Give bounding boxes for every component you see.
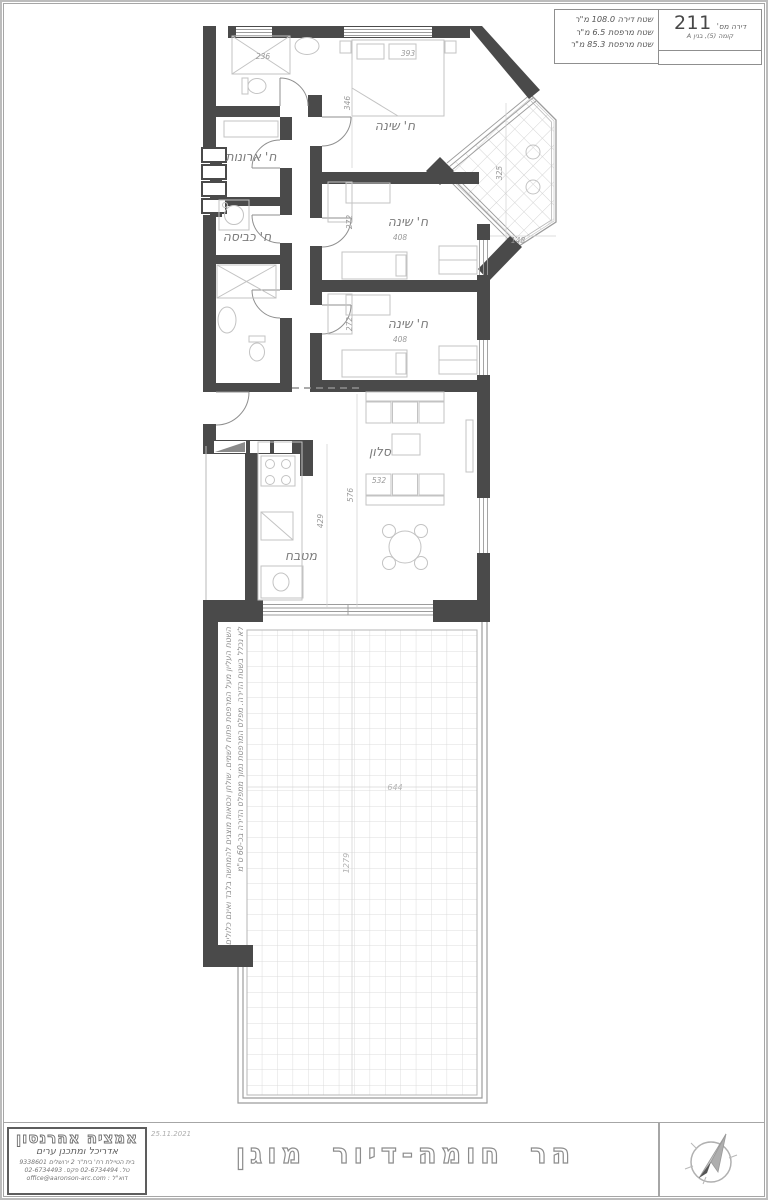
bedroom2-furniture bbox=[328, 182, 477, 279]
dim-bed2-h: 272 bbox=[345, 215, 354, 230]
drawing-date: 25.11.2021 bbox=[151, 1130, 191, 1138]
room-label-bedroom3: ח' שינה bbox=[388, 316, 429, 331]
entry-door bbox=[216, 392, 249, 425]
terrace-note-1: השטח העליון מעל המרפסת פתוח לשמים. שולחן… bbox=[224, 626, 233, 945]
wardrobe bbox=[224, 121, 278, 137]
dim-bed3-h: 272 bbox=[345, 317, 354, 332]
project-title: הר חומה-דיור מוגן bbox=[163, 1139, 648, 1170]
room-label-bedroom1: ח' שינה bbox=[375, 118, 416, 133]
dim-kitchen-h: 429 bbox=[316, 514, 325, 529]
compass-needle-side bbox=[711, 1134, 726, 1172]
dim-bay-h: 325 bbox=[495, 166, 504, 181]
room-label-kitchen: מטבח bbox=[285, 548, 317, 563]
areas-box: שטח דירה 108.0 מ"ר שטח מרפסת 6.5 מ"ר שטח… bbox=[554, 9, 659, 64]
bedroom1-door bbox=[322, 117, 351, 146]
kitchen-furniture bbox=[258, 442, 303, 600]
architect-name: אמציה אהרנסון bbox=[9, 1130, 145, 1147]
room-label-living: סלון bbox=[369, 444, 392, 459]
drawing-sheet: ח' שינה ח' שינה ח' שינה ח' ארונות ח' כבי… bbox=[0, 0, 768, 1200]
compass-needle bbox=[699, 1134, 726, 1178]
dim-bed1-w: 393 bbox=[401, 49, 416, 58]
area-line-3: שטח מרפסת 85.3 מ"ר bbox=[557, 38, 653, 51]
room-label-closet: ח' ארונות bbox=[225, 149, 277, 164]
bath1-door bbox=[280, 78, 308, 106]
architect-address: בית הטיילת רח' בית"ר 2 ירושלים 9338601 bbox=[9, 1159, 145, 1167]
bathroom-1 bbox=[232, 36, 319, 94]
floor-plan: ח' שינה ח' שינה ח' שינה ח' ארונות ח' כבי… bbox=[0, 0, 768, 1200]
area-line-1: שטח דירה 108.0 מ"ר bbox=[557, 13, 653, 26]
terrace-notes: השטח העליון מעל המרפסת פתוח לשמים. שולחן… bbox=[224, 626, 245, 945]
apartment-box: דירה מס' 211 קומה (5), בנין A bbox=[658, 9, 762, 65]
terrace-note-2: לא נכלל בשטח הדירה. מפלס המרפסת נמוך ממפ… bbox=[236, 627, 245, 873]
architect-email: דוא"ל : office@aaronson-arc.com bbox=[9, 1175, 145, 1183]
apartment-label: דירה מס' bbox=[717, 22, 746, 31]
footer-divider bbox=[658, 1123, 660, 1197]
footer-strip: אמציה אהרנסון אדריכל ומתכנן ערים בית הטי… bbox=[3, 1122, 765, 1197]
title-block: שטח דירה 108.0 מ"ר שטח מרפסת 6.5 מ"ר שטח… bbox=[554, 9, 762, 65]
room-label-bedroom2: ח' שינה bbox=[388, 214, 429, 229]
empty-cell bbox=[658, 51, 762, 65]
bedroom1-furniture bbox=[340, 40, 456, 116]
dim-bed1-h: 346 bbox=[343, 96, 352, 111]
architect-box: אמציה אהרנסון אדריכל ומתכנן ערים בית הטי… bbox=[7, 1127, 147, 1195]
architect-phones: טל. 02-6734494 פקס. 02-6734493 bbox=[9, 1167, 145, 1175]
area-line-2: שטח מרפסת 6.5 מ"ר bbox=[557, 26, 653, 39]
dim-terrace-h: 1279 bbox=[342, 853, 351, 873]
dim-terrace-w: 644 bbox=[387, 783, 402, 792]
terrace bbox=[238, 622, 487, 1103]
dim-living-h: 576 bbox=[346, 488, 355, 503]
dim-living-w: 532 bbox=[372, 476, 387, 485]
bathroom-2 bbox=[217, 265, 276, 361]
architect-profession: אדריכל ומתכנן ערים bbox=[9, 1147, 145, 1157]
dim-bay-w: 148 bbox=[511, 236, 526, 245]
dim-bed2-w: 408 bbox=[393, 233, 408, 242]
compass-ticks bbox=[685, 1143, 737, 1184]
compass-logo bbox=[673, 1129, 751, 1193]
dim-shower: 236 bbox=[256, 52, 271, 61]
apartment-number: 211 bbox=[674, 12, 712, 34]
room-label-laundry: ח' כביסה bbox=[223, 229, 272, 244]
sliding-door bbox=[263, 605, 433, 616]
dim-bed3-w: 408 bbox=[393, 335, 408, 344]
